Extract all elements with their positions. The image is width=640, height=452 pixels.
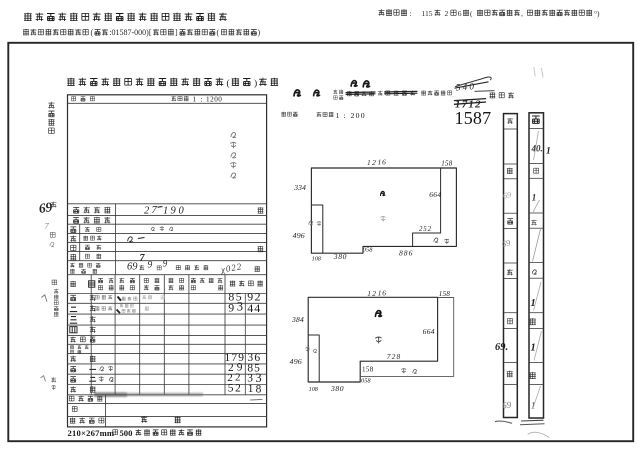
svg-text:1: 1 <box>336 111 340 120</box>
svg-text:]: ] <box>175 28 178 37</box>
svg-text:158: 158 <box>439 290 451 298</box>
svg-text:1: 1 <box>532 193 537 203</box>
svg-text:9: 9 <box>148 261 153 271</box>
svg-text:16: 16 <box>378 289 387 298</box>
svg-text:384: 384 <box>291 315 304 324</box>
svg-text:9: 9 <box>163 259 168 269</box>
svg-text:058: 058 <box>361 377 371 384</box>
svg-text:1: 1 <box>531 343 536 354</box>
svg-text:158: 158 <box>441 160 453 168</box>
svg-text:728: 728 <box>387 352 402 361</box>
svg-text:69.: 69. <box>495 342 508 353</box>
svg-text:664: 664 <box>429 190 441 199</box>
svg-text:1587: 1587 <box>455 108 492 128</box>
svg-text:7: 7 <box>152 205 158 216</box>
svg-text:69: 69 <box>502 400 512 411</box>
svg-text:69: 69 <box>38 199 54 216</box>
svg-text:(: ( <box>227 78 230 89</box>
svg-text:380: 380 <box>333 252 347 261</box>
svg-text:9: 9 <box>228 300 234 314</box>
svg-text:886: 886 <box>399 249 413 258</box>
svg-text:3: 3 <box>237 299 243 313</box>
svg-text:): ) <box>258 28 261 37</box>
svg-text:500: 500 <box>120 428 133 438</box>
svg-text:1200: 1200 <box>206 96 222 104</box>
svg-text:(: ( <box>217 28 220 37</box>
svg-text:496: 496 <box>293 231 305 240</box>
svg-text:664: 664 <box>423 327 435 336</box>
svg-text:108: 108 <box>309 386 319 393</box>
svg-text:1: 1 <box>546 147 551 157</box>
svg-text:69: 69 <box>502 190 511 200</box>
svg-text:,: , <box>521 9 523 18</box>
svg-text:1: 1 <box>163 205 170 216</box>
svg-text:200: 200 <box>351 111 366 120</box>
svg-text:(: ( <box>91 28 94 37</box>
svg-text:496: 496 <box>290 357 302 366</box>
svg-text:158: 158 <box>362 365 374 373</box>
svg-text:2: 2 <box>445 9 449 18</box>
svg-text::: : <box>201 96 203 104</box>
svg-text:0: 0 <box>179 206 185 217</box>
svg-text::: : <box>344 111 346 120</box>
svg-text:): ) <box>254 78 257 89</box>
svg-text:69: 69 <box>127 261 138 272</box>
svg-text:380: 380 <box>330 384 344 393</box>
svg-text:8: 8 <box>256 383 262 395</box>
svg-text:40.: 40. <box>531 144 543 154</box>
svg-text:334: 334 <box>293 183 306 192</box>
svg-text:1: 1 <box>248 383 256 395</box>
svg-text:108: 108 <box>312 255 322 262</box>
svg-text::: : <box>410 9 412 18</box>
svg-text:210×267mm: 210×267mm <box>68 428 115 438</box>
svg-text:058: 058 <box>363 247 373 254</box>
svg-text::01587-000)[: :01587-000)[ <box>109 28 152 37</box>
svg-text:6: 6 <box>458 9 462 18</box>
svg-text:12: 12 <box>367 289 377 298</box>
svg-text:52: 52 <box>228 383 243 395</box>
svg-text:16: 16 <box>378 158 387 167</box>
svg-text:252: 252 <box>419 226 432 233</box>
svg-text:44: 44 <box>247 301 261 315</box>
svg-text:°): °) <box>594 9 600 18</box>
svg-text:9: 9 <box>171 206 178 217</box>
svg-text:1: 1 <box>193 96 197 104</box>
svg-text:2: 2 <box>144 206 150 217</box>
svg-text:115: 115 <box>422 9 433 18</box>
svg-text:12: 12 <box>367 158 377 167</box>
